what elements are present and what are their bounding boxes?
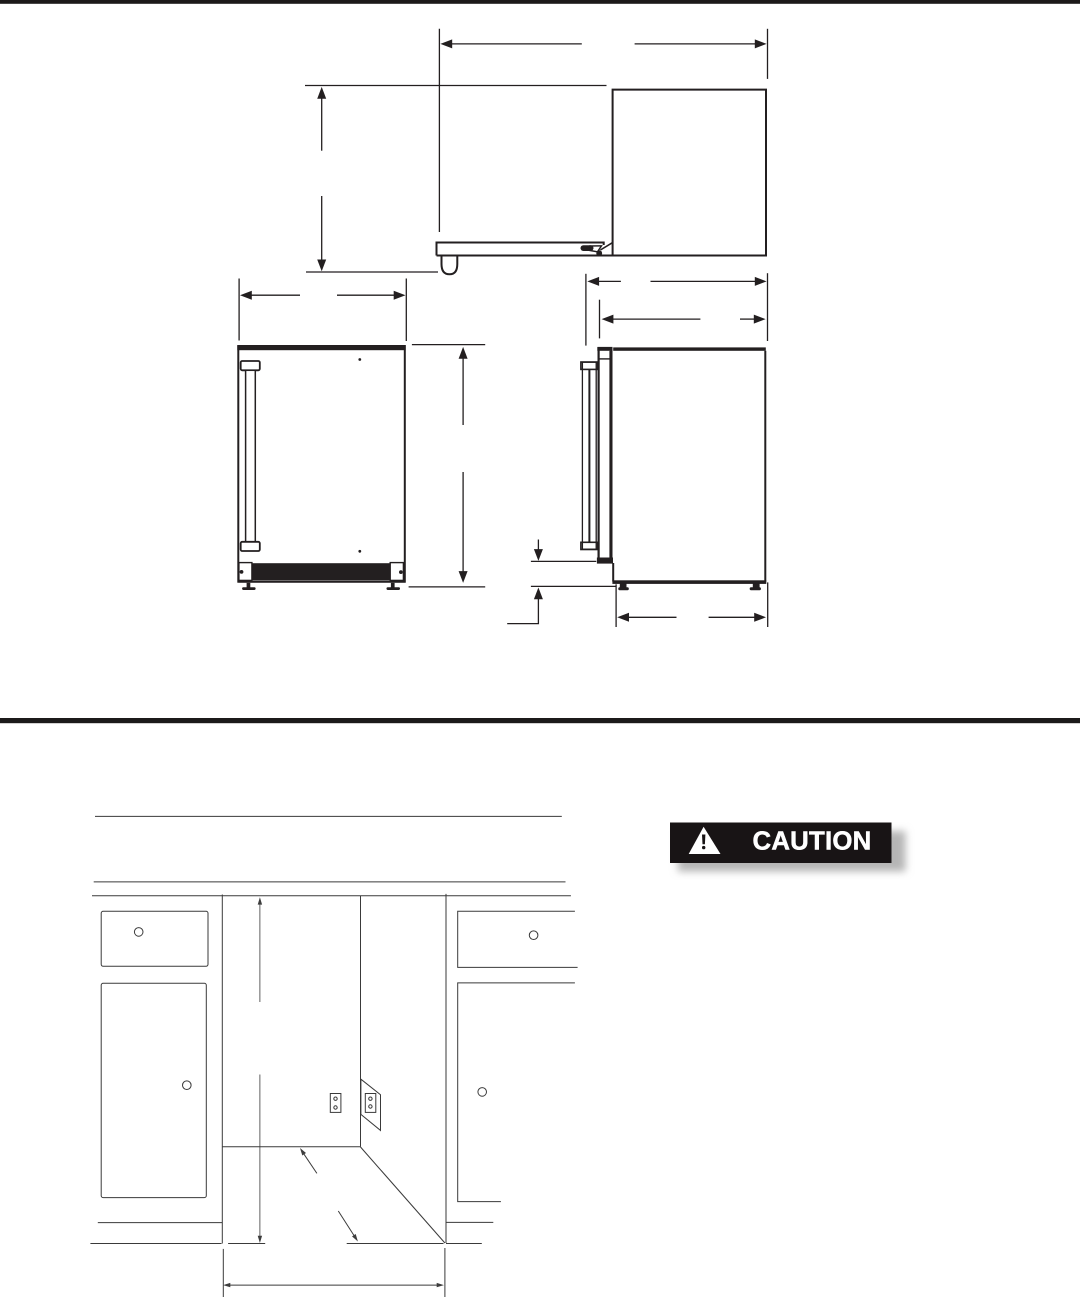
svg-text:CAUTION: CAUTION [753,827,872,855]
